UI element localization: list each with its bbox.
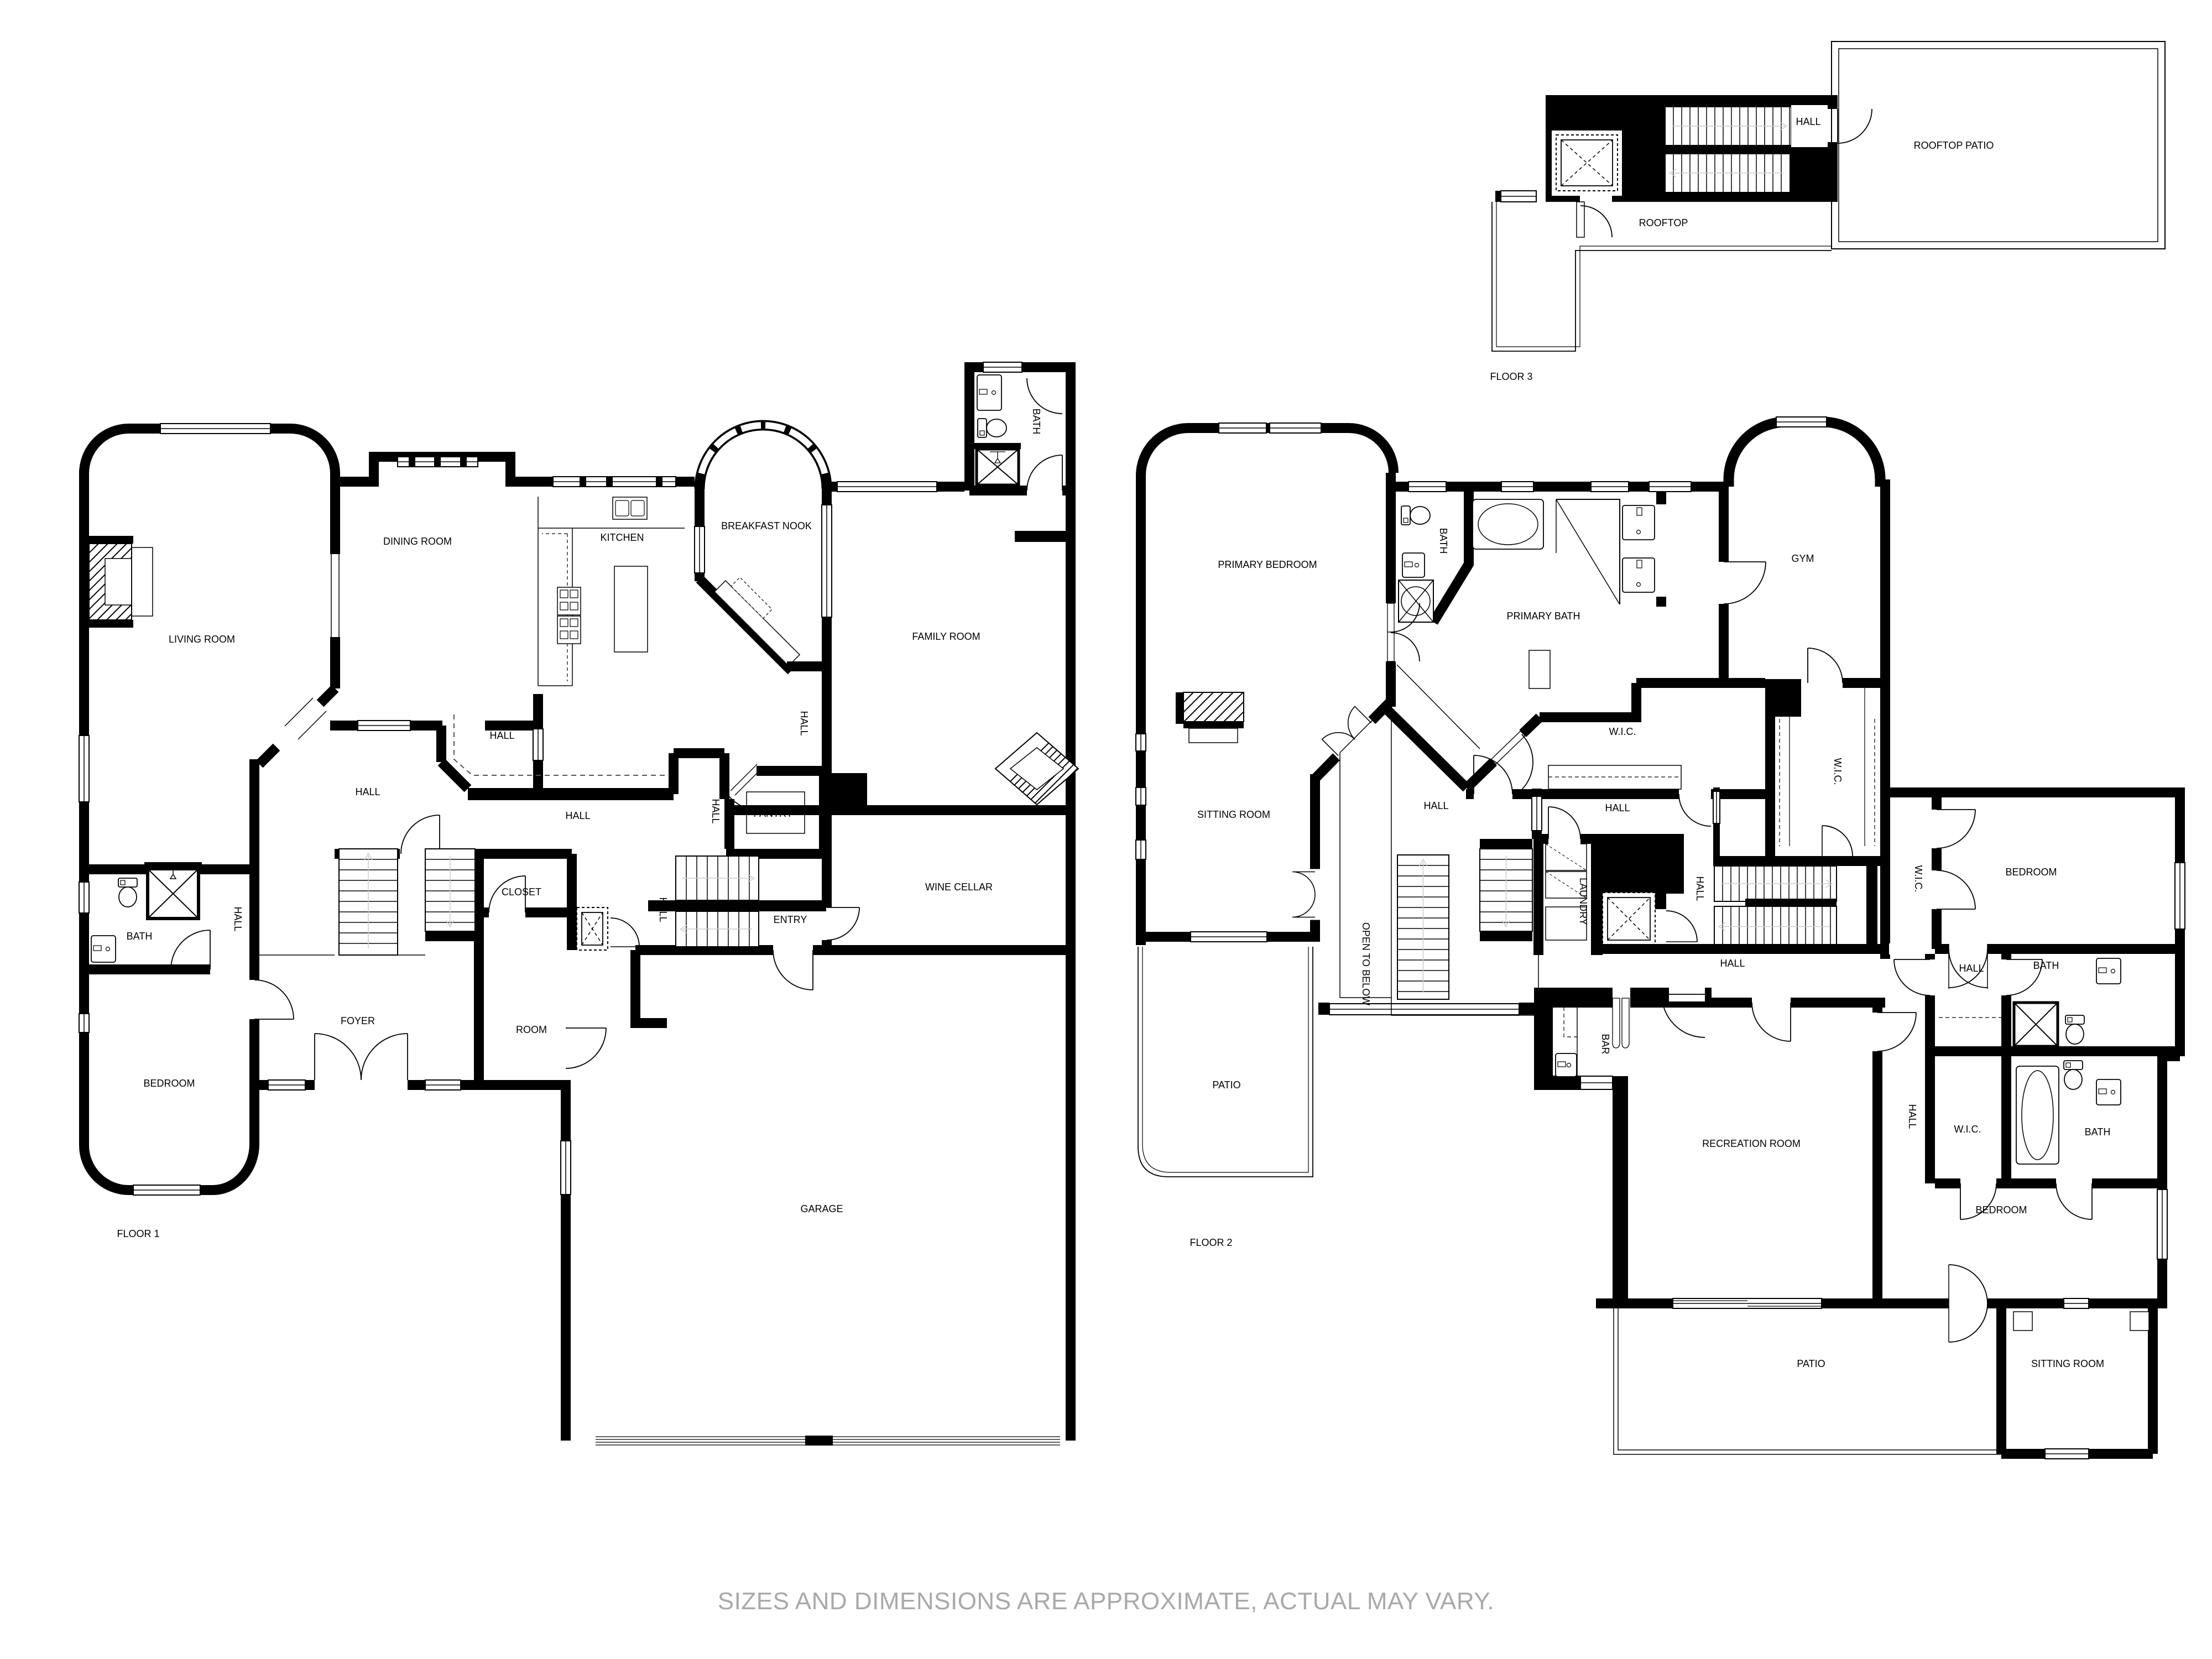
svg-text:BATH: BATH: [2085, 1126, 2111, 1138]
svg-text:FOYER: FOYER: [341, 1015, 375, 1026]
svg-text:HALL: HALL: [1423, 800, 1448, 811]
svg-text:CLOSET: CLOSET: [502, 886, 541, 898]
svg-text:PATIO: PATIO: [1212, 1079, 1240, 1091]
svg-text:W.I.C.: W.I.C.: [1832, 758, 1843, 785]
svg-text:BATH: BATH: [2033, 960, 2059, 971]
svg-text:HALL: HALL: [1796, 116, 1820, 127]
svg-text:FLOOR 3: FLOOR 3: [1490, 371, 1532, 382]
svg-text:KITCHEN: KITCHEN: [600, 532, 644, 543]
svg-text:ROOFTOP: ROOFTOP: [1639, 217, 1688, 228]
svg-text:LIVING ROOM: LIVING ROOM: [169, 634, 235, 645]
svg-text:HALL: HALL: [1959, 963, 1984, 974]
svg-text:PANTRY: PANTRY: [753, 808, 792, 819]
svg-text:BEDROOM: BEDROOM: [143, 1078, 195, 1089]
svg-text:PRIMARY BATH: PRIMARY BATH: [1506, 611, 1580, 622]
svg-text:BAR: BAR: [1600, 1034, 1611, 1054]
svg-text:FLOOR 2: FLOOR 2: [1190, 1237, 1232, 1248]
svg-text:HALL: HALL: [1605, 802, 1630, 813]
svg-text:BATH: BATH: [127, 931, 153, 942]
svg-text:RECREATION ROOM: RECREATION ROOM: [1702, 1138, 1801, 1149]
svg-text:ENTRY: ENTRY: [774, 914, 807, 925]
svg-text:SITTING ROOM: SITTING ROOM: [1197, 809, 1270, 820]
svg-text:SIZES AND DIMENSIONS ARE APPRO: SIZES AND DIMENSIONS ARE APPROXIMATE, AC…: [718, 1588, 1494, 1615]
svg-text:GYM: GYM: [1791, 553, 1814, 564]
svg-text:BEDROOM: BEDROOM: [1975, 1204, 2027, 1215]
svg-text:BREAKFAST NOOK: BREAKFAST NOOK: [721, 520, 812, 531]
svg-text:SITTING ROOM: SITTING ROOM: [2031, 1358, 2104, 1369]
svg-text:HALL: HALL: [1720, 958, 1745, 969]
svg-text:DINING ROOM: DINING ROOM: [383, 536, 452, 547]
svg-text:BATH: BATH: [1438, 528, 1449, 554]
svg-text:HALL: HALL: [658, 897, 669, 922]
svg-text:BATH: BATH: [1031, 409, 1042, 435]
svg-text:HALL: HALL: [565, 810, 590, 821]
svg-text:GARAGE: GARAGE: [800, 1203, 843, 1214]
svg-text:HALL: HALL: [489, 730, 514, 741]
svg-text:PRIMARY BEDROOM: PRIMARY BEDROOM: [1218, 559, 1317, 570]
svg-text:WINE CELLAR: WINE CELLAR: [925, 881, 993, 893]
svg-text:W.I.C.: W.I.C.: [1954, 1124, 1981, 1135]
svg-text:HALL: HALL: [355, 786, 380, 797]
svg-text:LAUNDRY: LAUNDRY: [1578, 878, 1589, 925]
svg-text:W.I.C.: W.I.C.: [1913, 865, 1924, 893]
svg-text:ROOM: ROOM: [516, 1024, 547, 1035]
svg-text:PATIO: PATIO: [1797, 1358, 1825, 1369]
svg-text:W.I.C.: W.I.C.: [1609, 726, 1636, 737]
svg-text:FAMILY ROOM: FAMILY ROOM: [912, 631, 980, 642]
svg-text:OPEN TO BELOW: OPEN TO BELOW: [1360, 922, 1371, 1005]
svg-text:BEDROOM: BEDROOM: [2005, 867, 2057, 878]
svg-text:HALL: HALL: [710, 799, 721, 823]
svg-text:HALL: HALL: [232, 906, 243, 931]
svg-text:HALL: HALL: [1907, 1104, 1918, 1129]
svg-text:HALL: HALL: [1694, 876, 1705, 901]
svg-text:FLOOR 1: FLOOR 1: [117, 1228, 159, 1239]
svg-text:ROOFTOP PATIO: ROOFTOP PATIO: [1914, 140, 1994, 151]
svg-text:HALL: HALL: [799, 711, 810, 735]
